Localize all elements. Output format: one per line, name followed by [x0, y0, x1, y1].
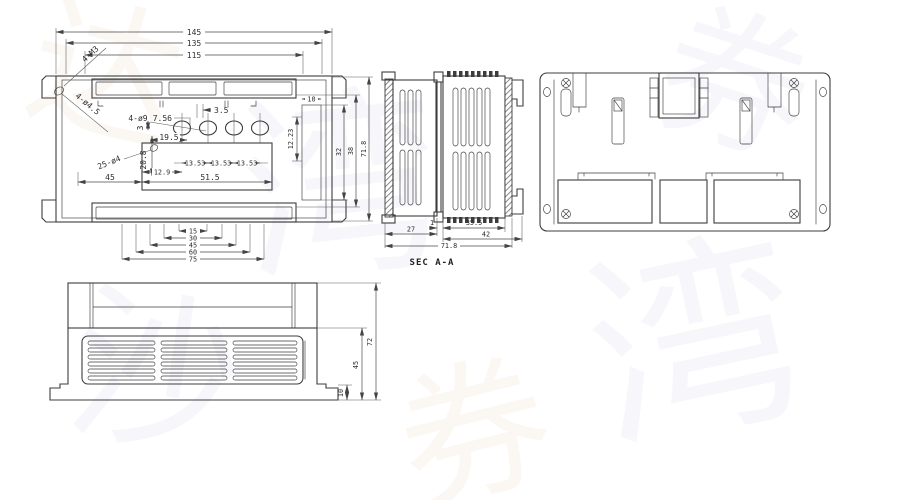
dim-front-10: 10	[337, 389, 345, 397]
dim-19-5: 19.5	[159, 133, 178, 142]
drawing-canvas: 达 湾 沙 湾 券 券	[0, 0, 900, 500]
screw	[562, 79, 571, 88]
dim-front-45: 45	[352, 361, 360, 369]
dim-7-56: 7.56	[153, 114, 172, 123]
dim-side-38: 38	[347, 147, 355, 155]
small-hole	[149, 143, 159, 152]
dim-3-5: 3.5	[214, 106, 229, 115]
dim-51-5: 51.5	[200, 173, 219, 182]
dim-35-5: 35.5	[466, 219, 482, 227]
dim-12-23: 12.23	[287, 129, 295, 149]
dim-pitch-3: 13.53	[237, 160, 257, 168]
dim-pitch-1: 13.53	[185, 160, 205, 168]
dim-42: 42	[482, 231, 490, 239]
dim-1: 1	[430, 219, 434, 227]
dim-135: 135	[187, 39, 202, 48]
dim-71-8: 71.8	[441, 242, 457, 250]
screw	[562, 210, 571, 219]
label-big-holes: 4-ø9	[128, 114, 147, 123]
dim-front-72: 72	[366, 338, 374, 346]
section-title: SEC A-A	[410, 258, 455, 268]
dim-3: 3	[136, 125, 145, 130]
dim-pitch-2: 13.53	[211, 160, 231, 168]
dim-20-8: 20.8	[139, 150, 148, 169]
screw	[790, 210, 799, 219]
dim-10-right: 10	[307, 96, 315, 104]
screw	[790, 79, 799, 88]
dim-stack-75: 75	[189, 256, 197, 264]
serration-top	[447, 71, 499, 77]
section-view: 35.5 1 27 42 71.8 SEC A-A	[382, 71, 523, 268]
dim-12-9: 12.9	[154, 169, 170, 177]
dim-45: 45	[105, 173, 115, 182]
front-view: 10 45 72	[50, 283, 381, 400]
top-view: 145 135 115 4-M3 4-ø4.5 7.56 3.5 4-ø9 19…	[42, 28, 373, 264]
engineering-drawing: 145 135 115 4-M3 4-ø4.5 7.56 3.5 4-ø9 19…	[0, 0, 900, 500]
vent-slats	[88, 341, 297, 380]
dim-side-71-8: 71.8	[360, 141, 368, 157]
bottom-view	[540, 73, 830, 231]
dim-115: 115	[187, 51, 202, 60]
label-corner-thread: 4-M3	[80, 44, 100, 64]
label-small-holes: 25-ø4	[96, 154, 122, 171]
dim-27: 27	[407, 226, 415, 234]
dim-overall-145: 145	[187, 28, 202, 37]
dim-side-32: 32	[335, 148, 343, 156]
